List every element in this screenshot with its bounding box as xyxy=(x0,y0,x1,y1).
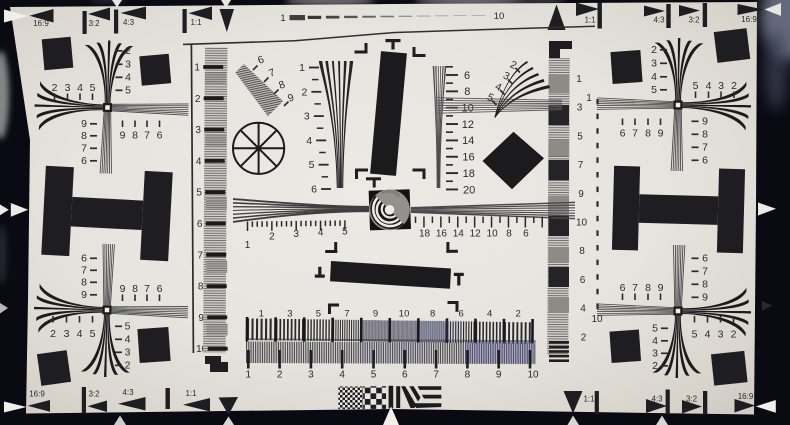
svg-text:9: 9 xyxy=(120,130,126,142)
svg-text:5: 5 xyxy=(309,159,315,171)
svg-text:18: 18 xyxy=(419,229,431,240)
svg-text:8: 8 xyxy=(132,130,138,142)
svg-text:7: 7 xyxy=(433,370,439,381)
svg-text:16: 16 xyxy=(462,152,474,164)
svg-text:4:3: 4:3 xyxy=(123,18,135,27)
svg-text:2: 2 xyxy=(651,44,657,56)
svg-text:4: 4 xyxy=(125,334,131,346)
svg-text:16:9: 16:9 xyxy=(738,392,754,401)
svg-text:1: 1 xyxy=(586,93,592,104)
svg-text:10: 10 xyxy=(591,314,603,325)
svg-text:2: 2 xyxy=(301,86,307,98)
svg-text:3: 3 xyxy=(293,229,299,240)
svg-text:9: 9 xyxy=(702,116,708,128)
svg-text:6: 6 xyxy=(620,282,626,294)
svg-text:12: 12 xyxy=(462,119,474,131)
svg-text:2: 2 xyxy=(269,232,275,243)
svg-text:6: 6 xyxy=(458,309,463,320)
svg-text:3: 3 xyxy=(718,80,724,92)
svg-text:5: 5 xyxy=(577,131,583,142)
svg-text:7: 7 xyxy=(702,266,708,278)
svg-text:3: 3 xyxy=(652,348,658,360)
svg-text:2: 2 xyxy=(125,360,131,372)
svg-text:6: 6 xyxy=(311,184,317,196)
svg-text:4: 4 xyxy=(339,370,345,381)
svg-text:16:9: 16:9 xyxy=(29,390,45,399)
svg-text:2: 2 xyxy=(52,82,58,94)
svg-text:1: 1 xyxy=(280,13,285,24)
svg-text:10: 10 xyxy=(494,11,505,22)
svg-text:5: 5 xyxy=(651,84,657,96)
svg-text:1: 1 xyxy=(576,74,582,85)
svg-text:4:3: 4:3 xyxy=(122,388,134,397)
svg-text:7: 7 xyxy=(144,283,150,295)
svg-text:5: 5 xyxy=(125,321,131,333)
svg-text:4: 4 xyxy=(580,304,586,315)
svg-text:5: 5 xyxy=(652,323,658,335)
svg-text:7: 7 xyxy=(81,265,87,277)
svg-text:8: 8 xyxy=(132,283,138,295)
svg-text:5: 5 xyxy=(196,188,202,199)
svg-text:8: 8 xyxy=(579,246,585,257)
svg-text:3: 3 xyxy=(125,347,131,359)
svg-text:5: 5 xyxy=(693,80,699,92)
svg-text:10: 10 xyxy=(487,229,499,240)
svg-text:4: 4 xyxy=(196,156,202,167)
svg-text:7: 7 xyxy=(144,130,150,142)
svg-text:9: 9 xyxy=(81,289,87,301)
svg-text:3: 3 xyxy=(195,125,201,136)
svg-text:9: 9 xyxy=(658,282,664,294)
svg-text:2: 2 xyxy=(731,80,737,92)
svg-text:9: 9 xyxy=(496,370,502,381)
svg-text:16:9: 16:9 xyxy=(741,15,757,24)
svg-text:20: 20 xyxy=(463,184,475,196)
svg-text:6: 6 xyxy=(620,128,626,140)
svg-text:5: 5 xyxy=(125,85,131,97)
svg-text:7: 7 xyxy=(81,143,87,155)
svg-text:2: 2 xyxy=(731,329,737,341)
svg-text:1:1: 1:1 xyxy=(584,16,596,25)
svg-text:5: 5 xyxy=(342,227,348,238)
svg-text:4:3: 4:3 xyxy=(651,395,663,404)
svg-text:1:1: 1:1 xyxy=(190,18,202,27)
svg-text:8: 8 xyxy=(645,128,651,140)
svg-text:14: 14 xyxy=(462,135,474,147)
svg-text:4: 4 xyxy=(651,71,657,83)
svg-text:7: 7 xyxy=(632,282,638,294)
svg-text:6: 6 xyxy=(197,219,203,230)
svg-text:8: 8 xyxy=(702,129,708,141)
svg-text:3:2: 3:2 xyxy=(88,390,100,399)
svg-text:8: 8 xyxy=(430,309,435,320)
svg-text:3: 3 xyxy=(308,370,314,381)
svg-text:3: 3 xyxy=(651,58,657,70)
svg-text:10: 10 xyxy=(399,309,410,320)
svg-text:3: 3 xyxy=(287,309,292,320)
svg-text:2: 2 xyxy=(277,370,283,381)
svg-text:8: 8 xyxy=(506,229,512,240)
svg-text:4: 4 xyxy=(77,82,83,94)
svg-text:4: 4 xyxy=(306,135,312,147)
svg-text:3: 3 xyxy=(718,329,724,341)
svg-text:6: 6 xyxy=(580,275,586,286)
svg-text:2: 2 xyxy=(581,332,587,343)
svg-text:9: 9 xyxy=(373,309,378,320)
svg-text:8: 8 xyxy=(198,282,204,293)
svg-text:7: 7 xyxy=(632,128,638,140)
svg-text:4: 4 xyxy=(652,335,658,347)
svg-text:18: 18 xyxy=(463,168,475,180)
svg-text:2: 2 xyxy=(195,94,201,105)
svg-text:5: 5 xyxy=(371,370,377,381)
svg-text:1: 1 xyxy=(259,309,264,320)
svg-text:4: 4 xyxy=(77,328,83,340)
svg-text:2: 2 xyxy=(125,45,131,57)
svg-text:7: 7 xyxy=(702,142,708,154)
svg-text:9: 9 xyxy=(120,283,126,295)
svg-text:1: 1 xyxy=(299,62,305,74)
svg-text:6: 6 xyxy=(523,229,529,240)
svg-text:6: 6 xyxy=(464,70,470,82)
svg-text:14: 14 xyxy=(453,229,465,240)
svg-text:6: 6 xyxy=(81,253,87,265)
svg-text:3: 3 xyxy=(65,82,71,94)
svg-text:6: 6 xyxy=(702,253,708,265)
svg-text:4: 4 xyxy=(487,309,492,320)
svg-text:1: 1 xyxy=(245,240,251,251)
svg-text:3: 3 xyxy=(577,103,583,114)
svg-text:8: 8 xyxy=(702,279,708,291)
svg-text:9: 9 xyxy=(578,189,584,200)
svg-text:8: 8 xyxy=(81,277,87,289)
svg-text:3:2: 3:2 xyxy=(88,19,100,28)
svg-text:6: 6 xyxy=(402,370,408,381)
svg-text:3:2: 3:2 xyxy=(688,16,700,25)
svg-text:12: 12 xyxy=(470,229,482,240)
svg-text:6: 6 xyxy=(157,130,163,142)
svg-text:4:3: 4:3 xyxy=(653,16,665,25)
svg-text:2: 2 xyxy=(652,360,658,372)
svg-text:8: 8 xyxy=(645,282,651,294)
svg-text:6: 6 xyxy=(702,155,708,167)
svg-text:16:9: 16:9 xyxy=(33,19,49,28)
svg-text:1:1: 1:1 xyxy=(583,395,595,404)
svg-text:4: 4 xyxy=(706,80,712,92)
svg-text:4: 4 xyxy=(318,228,324,239)
svg-text:6: 6 xyxy=(157,283,163,295)
svg-text:5: 5 xyxy=(316,309,321,320)
svg-text:6: 6 xyxy=(81,155,87,167)
svg-text:3: 3 xyxy=(304,111,310,123)
svg-text:5: 5 xyxy=(692,329,698,341)
svg-text:10: 10 xyxy=(576,218,588,229)
svg-text:1:1: 1:1 xyxy=(185,389,197,398)
svg-text:1: 1 xyxy=(246,370,252,381)
svg-text:2: 2 xyxy=(50,328,56,340)
svg-text:16: 16 xyxy=(436,229,448,240)
svg-text:3: 3 xyxy=(64,328,70,340)
svg-text:7: 7 xyxy=(197,250,203,261)
svg-text:4: 4 xyxy=(125,72,131,84)
svg-text:3:2: 3:2 xyxy=(686,395,698,404)
svg-text:8: 8 xyxy=(465,370,471,381)
svg-text:2: 2 xyxy=(516,309,521,320)
svg-text:9: 9 xyxy=(702,292,708,304)
svg-text:7: 7 xyxy=(578,160,584,171)
svg-text:8: 8 xyxy=(81,130,87,142)
svg-text:8: 8 xyxy=(464,86,470,98)
svg-text:3: 3 xyxy=(125,59,131,71)
svg-text:1: 1 xyxy=(194,63,200,74)
svg-text:4: 4 xyxy=(705,329,711,341)
svg-text:9: 9 xyxy=(81,118,87,130)
svg-text:9: 9 xyxy=(658,128,664,140)
svg-text:5: 5 xyxy=(90,82,96,94)
svg-text:7: 7 xyxy=(344,309,349,320)
svg-text:10: 10 xyxy=(527,370,539,381)
svg-text:5: 5 xyxy=(90,328,96,340)
